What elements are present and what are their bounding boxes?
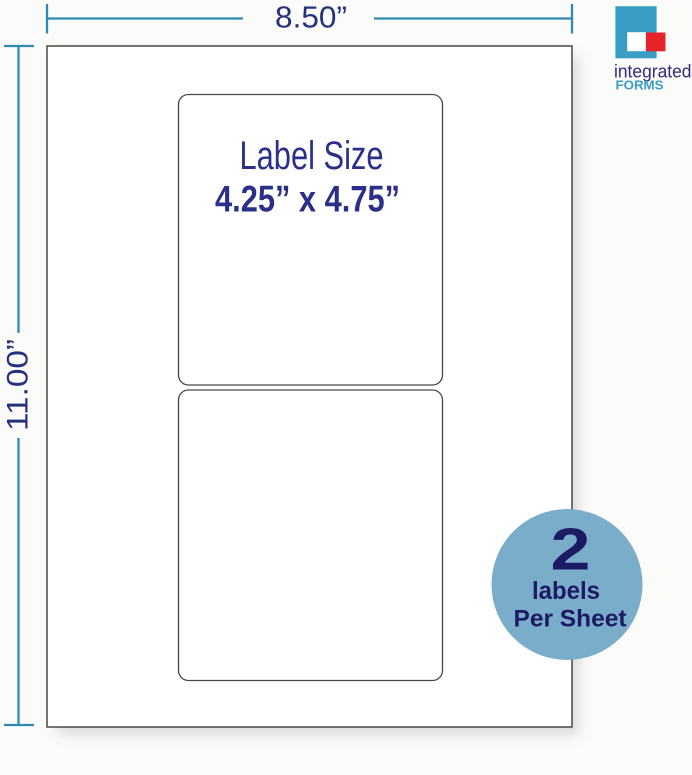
svg-text:Label Size: Label Size	[240, 134, 384, 178]
svg-text:8.50”: 8.50”	[275, 0, 347, 35]
svg-text:2: 2	[551, 517, 591, 583]
svg-text:FORMS: FORMS	[616, 79, 664, 93]
svg-text:Per Sheet: Per Sheet	[514, 606, 627, 633]
svg-text:labels: labels	[532, 577, 600, 605]
svg-text:4.25” x 4.75”: 4.25” x 4.75”	[215, 179, 400, 220]
svg-text:11.00”: 11.00”	[2, 339, 35, 431]
